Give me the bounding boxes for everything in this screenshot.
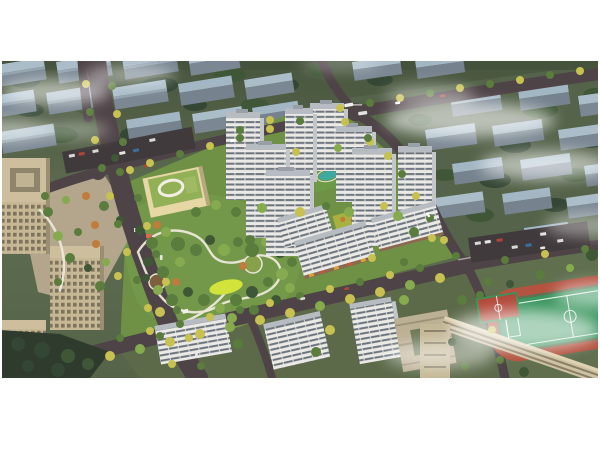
office-tower-north <box>0 158 50 254</box>
rendering-canvas <box>0 0 600 450</box>
architectural-rendering <box>0 0 600 450</box>
garden-bed <box>244 255 262 273</box>
